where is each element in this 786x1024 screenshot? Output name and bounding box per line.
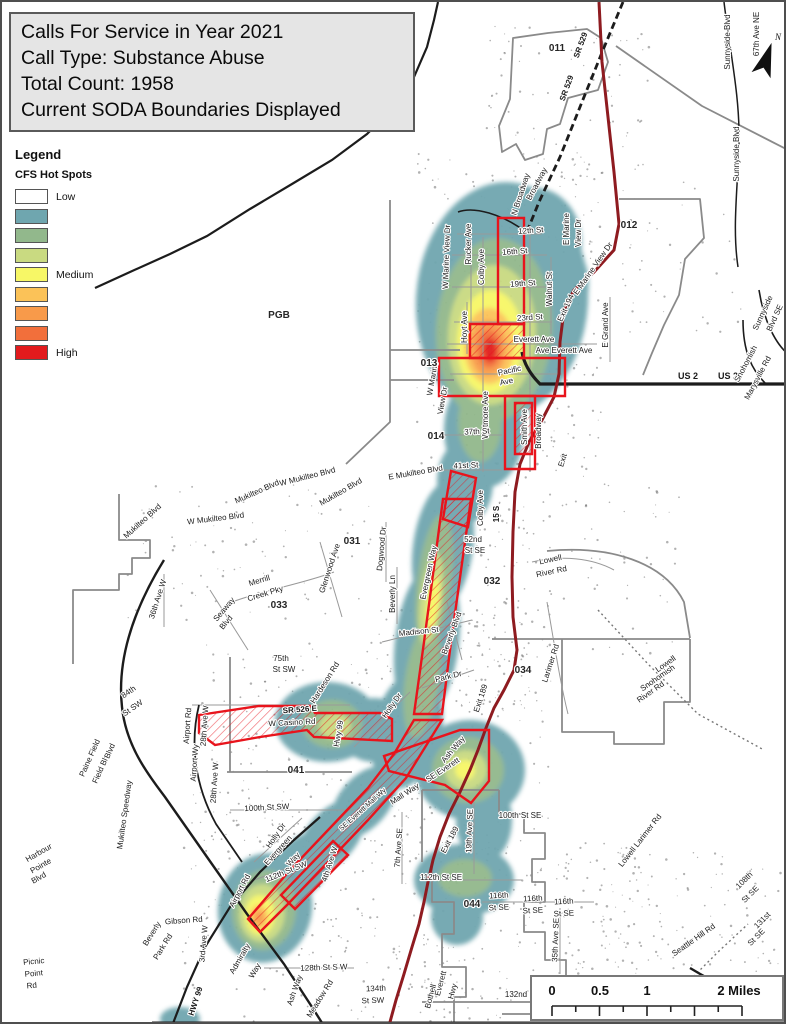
map-label: Rucker Ave: [464, 223, 473, 264]
legend: Legend CFS Hot Spots LowMediumHigh: [15, 147, 93, 363]
svg-text:0: 0: [548, 983, 555, 998]
legend-item: [15, 226, 93, 246]
map-label: 034: [515, 665, 532, 676]
svg-text:1: 1: [643, 983, 650, 998]
map-label: 15 S: [492, 505, 501, 522]
map-label: 128th St S W: [300, 962, 348, 973]
map-label: 52nd: [464, 535, 482, 544]
svg-text:0.5: 0.5: [591, 983, 609, 998]
map-label: Everett Ave: [514, 335, 555, 344]
map-label: Hoyt Ave: [460, 311, 469, 343]
map-label: 044: [464, 899, 481, 910]
map-label: View Dr: [574, 219, 583, 247]
map-label: 134th: [366, 984, 386, 994]
title-line-2: Call Type: Substance Abuse: [21, 45, 403, 71]
map-label: E Marine: [562, 212, 571, 245]
legend-item: [15, 246, 93, 266]
map-label: 41st St: [453, 460, 479, 470]
map-canvas: Sunnyside Blvd67th Ave NESunnyside BlvdS…: [2, 2, 786, 1024]
legend-label: High: [56, 347, 78, 359]
map-document: Sunnyside Blvd67th Ave NESunnyside BlvdS…: [0, 0, 786, 1024]
map-label: 116th: [489, 891, 509, 901]
map-label: Point: [24, 968, 44, 979]
map-label: 011: [549, 43, 566, 54]
map-label: Sunnyside Blvd: [723, 14, 732, 69]
map-label: 12th St: [518, 225, 545, 236]
map-label: St SE: [465, 546, 485, 555]
map-label: St SW: [361, 996, 384, 1006]
map-label: 013: [421, 358, 438, 369]
map-label: St SE: [522, 905, 543, 915]
legend-item: Low: [15, 187, 93, 207]
legend-label: Low: [56, 191, 75, 203]
map-label: 37th St: [464, 426, 491, 436]
map-label: 16th St: [502, 246, 529, 257]
legend-swatch: [15, 326, 48, 341]
legend-item: High: [15, 343, 93, 363]
map-label: Broadway: [534, 413, 543, 449]
legend-swatch: [15, 287, 48, 302]
legend-items: LowMediumHigh: [15, 187, 93, 363]
map-label: 014: [428, 431, 445, 442]
title-line-3: Total Count: 1958: [21, 71, 403, 97]
scale-bar-graphic: 00.512 Miles: [532, 977, 782, 1019]
map-label: 031: [344, 536, 361, 547]
map-label: Sunnyside Blvd: [732, 126, 741, 181]
map-label: Ave Everett Ave: [536, 346, 593, 355]
svg-text:2 Miles: 2 Miles: [717, 983, 760, 998]
map-label: E Grand Ave: [601, 302, 610, 348]
legend-label: Medium: [56, 269, 93, 281]
map-label: 19th St: [510, 278, 537, 289]
map-label: St SW: [273, 665, 296, 674]
map-label: US 2: [678, 371, 698, 381]
title-line-4: Current SODA Boundaries Displayed: [21, 97, 403, 123]
legend-item: [15, 324, 93, 344]
map-label: Beverly Ln: [388, 575, 397, 613]
legend-swatch: [15, 248, 48, 263]
map-label: 100th St SE: [499, 811, 542, 820]
legend-item: [15, 285, 93, 305]
map-label: Colby Ave: [476, 490, 485, 526]
legend-subtitle: CFS Hot Spots: [15, 169, 93, 181]
legend-item: Medium: [15, 265, 93, 285]
map-label: 032: [484, 576, 501, 587]
map-label: 19th Ave SE: [464, 809, 475, 853]
title-line-1: Calls For Service in Year 2021: [21, 19, 403, 45]
legend-title: Legend: [15, 147, 93, 162]
map-label: PGB: [268, 310, 290, 321]
map-label: 75th: [273, 654, 289, 663]
map-label: 116th: [523, 894, 543, 904]
legend-swatch: [15, 228, 48, 243]
map-label: 041: [288, 765, 305, 776]
hotspot-contour: [431, 889, 483, 945]
map-label: 132nd: [505, 990, 527, 999]
north-label: N: [774, 32, 782, 42]
map-label: St SE: [488, 902, 509, 912]
map-label: Walnut St: [545, 271, 554, 306]
map-label: Smith Ave: [520, 409, 529, 445]
map-label: Picnic: [23, 956, 45, 967]
map-label: 23rd St: [517, 312, 544, 323]
legend-swatch: [15, 189, 48, 204]
map-label: 116th: [554, 897, 574, 907]
map-label: 033: [271, 600, 288, 611]
legend-item: [15, 304, 93, 324]
map-label: 112th St SE: [420, 873, 462, 882]
north-arrow-icon: N: [746, 28, 786, 84]
legend-swatch: [15, 345, 48, 360]
legend-item: [15, 207, 93, 227]
map-label: Colby Ave: [477, 249, 486, 285]
map-label: 012: [621, 220, 638, 231]
title-box: Calls For Service in Year 2021 Call Type…: [9, 12, 415, 132]
map-label: Rd: [26, 981, 37, 991]
legend-swatch: [15, 209, 48, 224]
map-label: St SE: [553, 908, 574, 918]
legend-swatch: [15, 306, 48, 321]
scale-bar: 00.512 Miles: [530, 975, 784, 1021]
north-arrow: N: [746, 28, 786, 84]
map-label: 35th Ave SE: [550, 918, 561, 962]
legend-swatch: [15, 267, 48, 282]
